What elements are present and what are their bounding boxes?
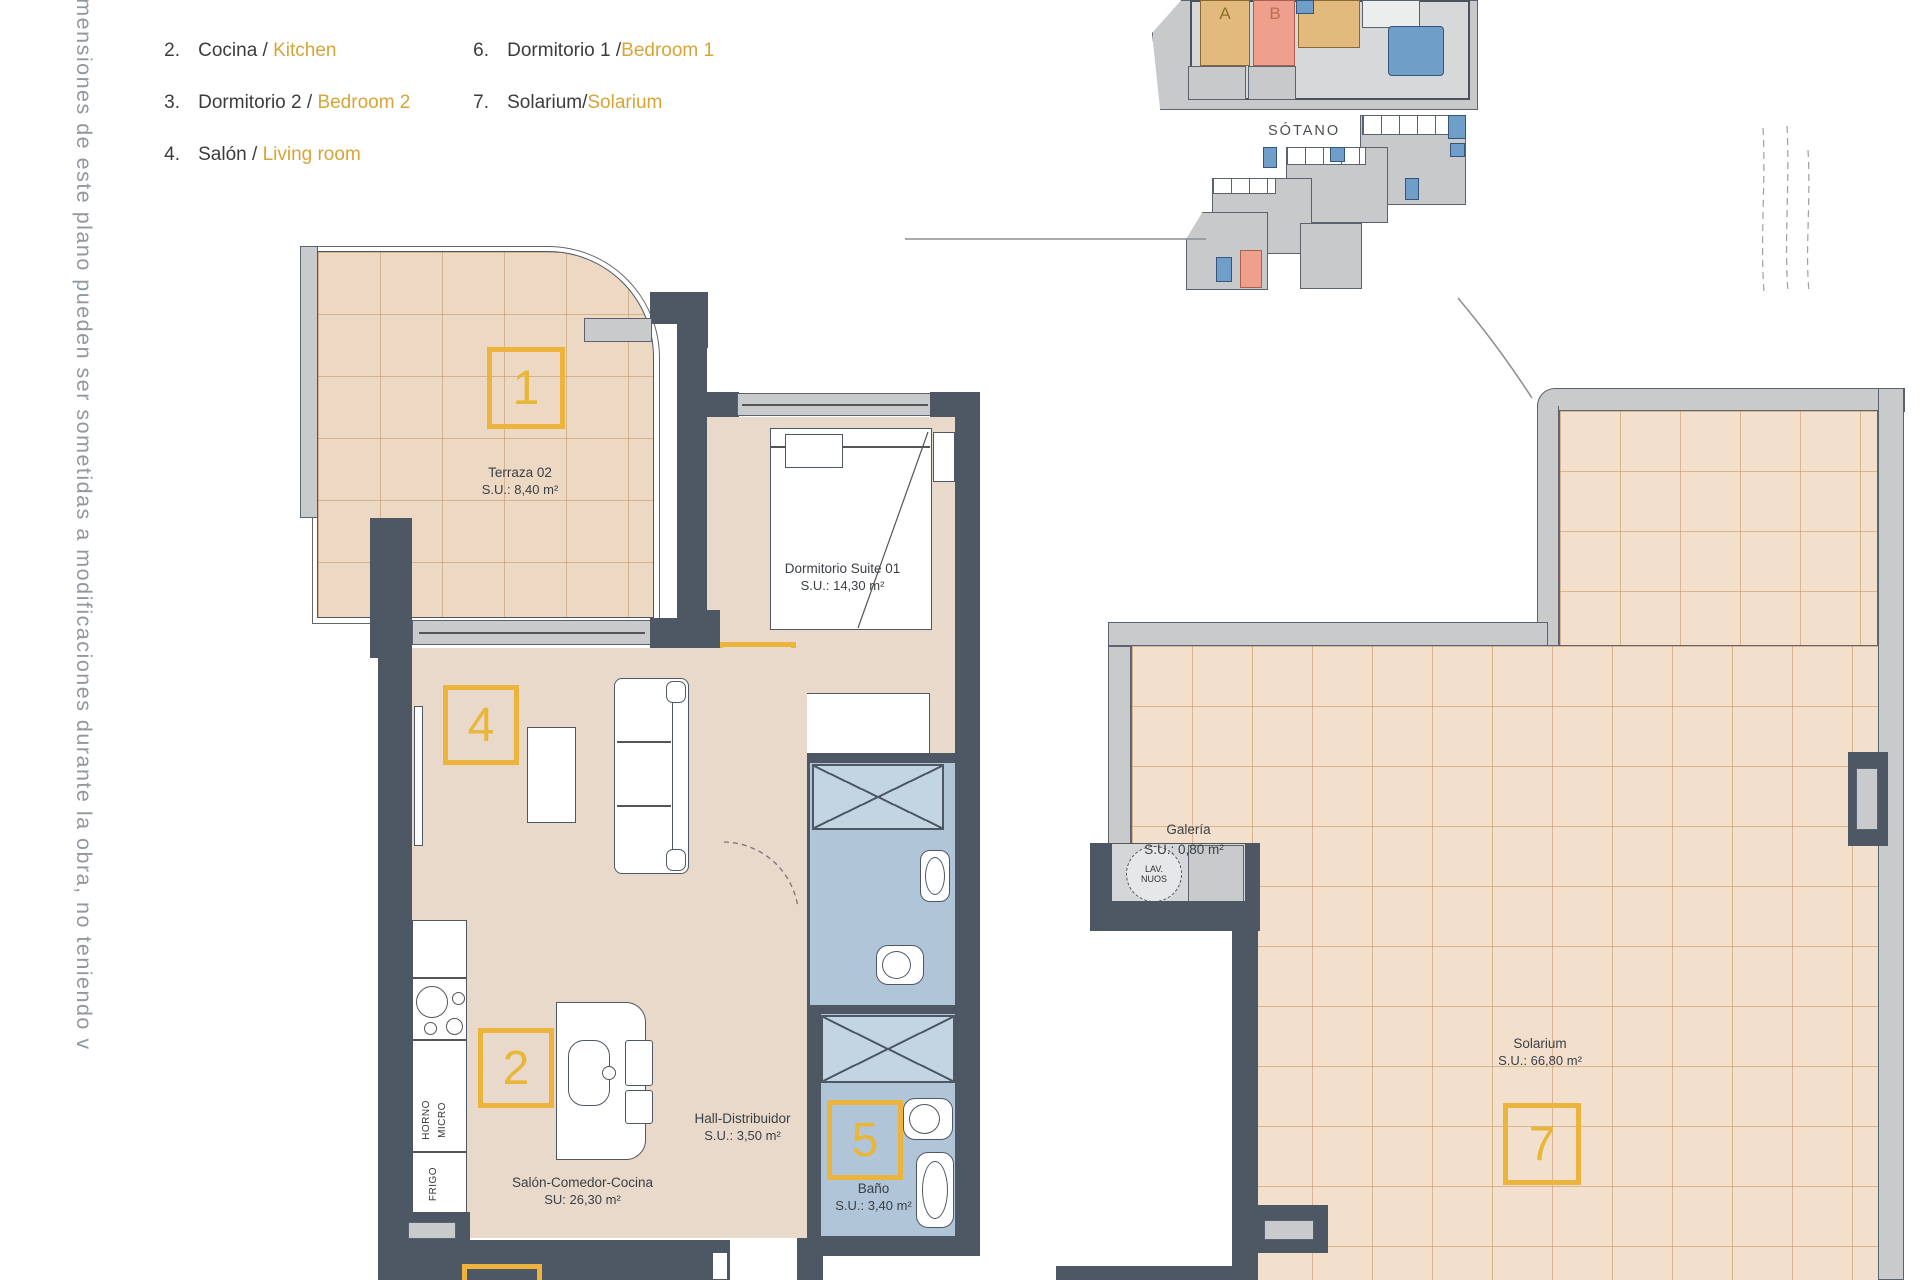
legend-es-label: Cocina / xyxy=(198,40,273,61)
legend-number: 2. xyxy=(164,40,198,62)
tv-unit xyxy=(414,706,423,846)
basement-parking-blue xyxy=(1405,178,1419,200)
stove-burner xyxy=(424,1022,437,1035)
galeria-right-wall xyxy=(1246,843,1260,903)
faucet xyxy=(602,1066,616,1080)
site-plan-block xyxy=(1248,66,1296,100)
room-name: Dormitorio Suite 01 xyxy=(715,560,970,578)
legend-es-label: Solarium/ xyxy=(507,92,587,113)
basement-storage-row xyxy=(1286,147,1366,165)
galeria-bottom-wall xyxy=(1090,901,1260,931)
coffee-table xyxy=(527,727,576,823)
nightstand xyxy=(933,432,955,482)
ensuite-top-wall xyxy=(798,753,955,763)
basement-block xyxy=(1300,223,1362,289)
side-disclaimer-text: imensiones de este plano pueden ser some… xyxy=(62,0,96,1280)
room-area: S.U.: 3,40 m² xyxy=(791,1198,956,1215)
legend-en-label: Kitchen xyxy=(273,40,336,61)
solarium-parapet-mid xyxy=(1108,622,1548,646)
room-area: SU: 26,30 m² xyxy=(455,1192,710,1209)
ensuite-toilet xyxy=(876,945,924,985)
void-bottom-wall xyxy=(1056,1266,1258,1280)
room-area: S.U.: 14,30 m² xyxy=(715,578,970,595)
apartment-left-wall xyxy=(378,648,412,1240)
galeria-area-label: S.U.: 0,80 m² xyxy=(1128,841,1240,856)
wall xyxy=(370,518,412,658)
void-right-wall xyxy=(1232,931,1258,1280)
washer-label-line1: LAV. xyxy=(1145,864,1163,874)
basement-storage-row xyxy=(1212,178,1276,194)
bedroom-window xyxy=(737,393,933,416)
stove-burner xyxy=(416,986,448,1018)
site-plan-unit-b-label: B xyxy=(1260,4,1290,30)
room-area: S.U.: 3,50 m² xyxy=(655,1128,830,1145)
bathroom-label: Baño S.U.: 3,40 m² xyxy=(791,1180,956,1224)
hall-label: Hall-Distribuidor S.U.: 3,50 m² xyxy=(655,1110,830,1150)
basement-parking-blue xyxy=(1216,257,1232,282)
fridge-label: FRIGO xyxy=(429,1154,443,1214)
washer-label-line2: NUOS xyxy=(1141,874,1167,884)
legend-es-label: Dormitorio 1 / xyxy=(507,40,621,61)
stool xyxy=(625,1090,653,1124)
room-marker-salon: 4 xyxy=(443,685,519,765)
basement-parking-blue xyxy=(1263,147,1277,168)
oven-label: HORNO xyxy=(422,1089,436,1151)
basement-unit-highlight xyxy=(1240,250,1262,288)
parapet-access-inner xyxy=(1856,768,1878,830)
room-marker-bano: 5 xyxy=(827,1100,903,1180)
basement-parking-blue xyxy=(1330,147,1345,162)
stove-burner xyxy=(452,992,465,1005)
room-area: S.U.: 66,80 m² xyxy=(1425,1053,1655,1070)
counter-divider xyxy=(412,1151,467,1153)
site-plan-block xyxy=(1188,66,1246,100)
road-dash-line xyxy=(1763,128,1764,292)
legend-es-label: Salón / xyxy=(198,144,262,165)
bathroom-toilet xyxy=(903,1098,953,1140)
window-glass-line xyxy=(419,632,645,634)
room-name: Terraza 02 xyxy=(425,464,615,482)
stool xyxy=(625,1040,653,1086)
solarium-label: Solarium S.U.: 66,80 m² xyxy=(1425,1035,1655,1079)
room-area: S.U.: 8,40 m² xyxy=(425,482,615,499)
toilet-bowl xyxy=(909,1104,940,1134)
basement-plan-title: SÓTANO xyxy=(1268,123,1368,141)
wall-niche xyxy=(408,1222,456,1239)
legend-es-label: Dormitorio 2 / xyxy=(198,92,317,113)
leader-curve xyxy=(1458,298,1532,398)
road-dash-line xyxy=(1808,150,1809,292)
legend-item-salon: 4.Salón / Living room xyxy=(143,122,361,188)
legend-number: 4. xyxy=(164,144,198,166)
terrace-floor xyxy=(317,251,654,618)
sofa xyxy=(614,678,689,874)
sofa-armrest xyxy=(666,849,686,871)
room-name: Solarium xyxy=(1425,1035,1655,1053)
door-leaf xyxy=(712,1252,728,1280)
wall xyxy=(797,1256,823,1280)
bedroom-left-wall xyxy=(677,320,707,660)
legend-item-solarium: 7.Solarium/Solarium xyxy=(452,70,662,136)
galeria-name-label: Galería xyxy=(1146,821,1231,837)
room-marker-terraza: 1 xyxy=(487,347,565,429)
ensuite-sink xyxy=(920,850,950,902)
apartment-right-wall xyxy=(955,392,980,1252)
counter-divider xyxy=(412,977,467,979)
void-cutout xyxy=(1056,931,1232,1267)
legend-en-label: Bedroom 2 xyxy=(317,92,410,113)
legend-en-label: Living room xyxy=(263,144,361,165)
sofa-cushion-line xyxy=(617,805,671,807)
solarium-parapet-left xyxy=(1537,406,1559,646)
basement-parking-blue xyxy=(1450,143,1465,157)
microwave-label: MICRO xyxy=(438,1089,452,1151)
ensuite-shower xyxy=(812,764,944,830)
solarium-floor-upper xyxy=(1559,410,1878,646)
window-glass-line xyxy=(742,404,928,406)
room-name: Salón-Comedor-Cocina xyxy=(455,1174,710,1192)
site-plan-pool-small xyxy=(1296,0,1314,14)
stove-burner xyxy=(446,1018,463,1035)
legend-number: 6. xyxy=(473,40,507,62)
terrace-sliding-window xyxy=(412,620,652,645)
pillar-niche xyxy=(1264,1220,1314,1240)
living-label: Salón-Comedor-Cocina SU: 26,30 m² xyxy=(455,1174,710,1218)
room-name: Hall-Distribuidor xyxy=(655,1110,830,1128)
site-plan-unit-a-label: A xyxy=(1206,4,1244,30)
site-plan-pool xyxy=(1388,26,1444,76)
site-plan-block xyxy=(1362,0,1420,28)
bathroom-shower xyxy=(821,1015,955,1083)
floorplan-page: imensiones de este plano pueden ser some… xyxy=(0,0,1920,1280)
road-dash-line xyxy=(1787,126,1788,292)
counter-divider xyxy=(412,1039,467,1041)
wardrobe xyxy=(805,693,930,755)
sink-basin xyxy=(925,857,945,895)
legend-number: 7. xyxy=(473,92,507,114)
bed-pillow xyxy=(785,434,843,468)
sofa-backrest xyxy=(672,683,688,869)
room-marker-solarium: 7 xyxy=(1503,1103,1581,1185)
basement-parking-blue xyxy=(1448,115,1466,139)
legend-number: 3. xyxy=(164,92,198,114)
solarium-parapet-left-lower xyxy=(1108,646,1131,844)
room-marker-3-partial xyxy=(462,1264,542,1280)
sofa-armrest xyxy=(666,681,686,703)
entry-window xyxy=(584,318,652,342)
legend-en-label: Solarium xyxy=(587,92,662,113)
sofa-cushion-line xyxy=(617,741,671,743)
toilet-bowl xyxy=(882,951,911,979)
room-name: Baño xyxy=(791,1180,956,1198)
bedroom-label: Dormitorio Suite 01 S.U.: 14,30 m² xyxy=(715,560,970,602)
solarium-parapet-top xyxy=(1537,388,1905,412)
wall xyxy=(797,1236,980,1256)
legend-en-label: Bedroom 1 xyxy=(621,40,714,61)
terrace-label: Terraza 02 S.U.: 8,40 m² xyxy=(425,464,615,506)
room-marker-cocina: 2 xyxy=(478,1028,554,1108)
wall xyxy=(677,392,739,417)
terrace-outer-wall xyxy=(300,246,318,518)
